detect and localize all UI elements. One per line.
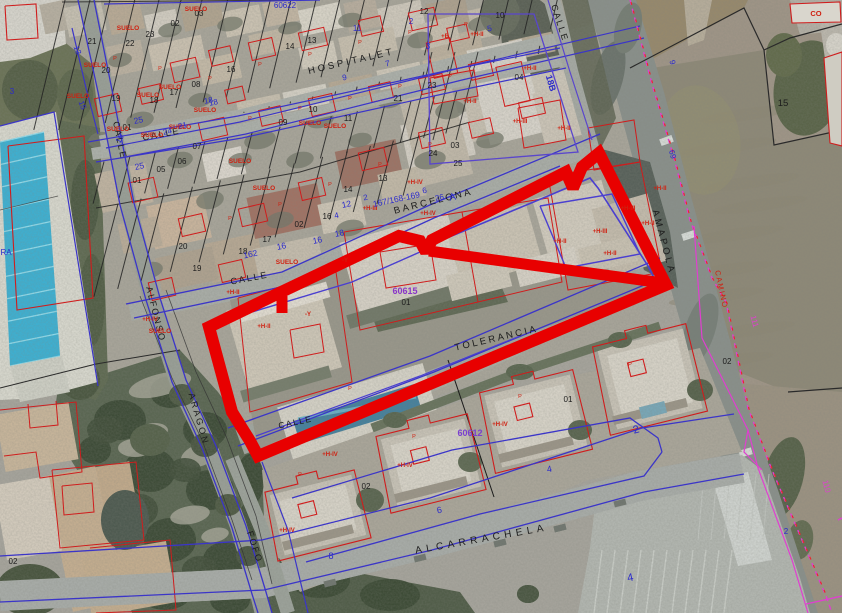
- svg-text:P: P: [298, 106, 302, 112]
- svg-text:P: P: [378, 162, 382, 168]
- svg-text:CO: CO: [810, 9, 821, 18]
- svg-text:SUELO: SUELO: [276, 259, 298, 266]
- svg-text:P: P: [518, 394, 522, 400]
- svg-text:02: 02: [9, 557, 18, 566]
- svg-text:+H-II: +H-II: [553, 239, 567, 245]
- svg-text:+H-II: +H-II: [523, 66, 537, 72]
- svg-text:12: 12: [420, 7, 429, 16]
- svg-text:P: P: [398, 84, 402, 90]
- svg-text:+H-II: +H-II: [226, 290, 240, 296]
- svg-text:P: P: [208, 76, 212, 82]
- svg-text:22: 22: [126, 39, 135, 48]
- svg-text:14: 14: [286, 42, 295, 51]
- svg-text:8: 8: [328, 551, 333, 561]
- svg-text:SUELO: SUELO: [324, 123, 346, 130]
- svg-text:23: 23: [146, 30, 155, 39]
- svg-text:SUELO: SUELO: [107, 126, 129, 133]
- svg-text:23: 23: [428, 81, 437, 90]
- svg-text:P: P: [358, 40, 362, 46]
- svg-text:+H-II: +H-II: [641, 221, 655, 227]
- svg-text:07: 07: [193, 142, 202, 151]
- svg-text:SUELO: SUELO: [137, 92, 159, 99]
- svg-text:25: 25: [454, 159, 463, 168]
- svg-text:P: P: [158, 66, 162, 72]
- svg-text:+H-IV: +H-IV: [420, 211, 436, 217]
- svg-text:+H-III: +H-III: [593, 229, 608, 235]
- svg-text:P: P: [412, 434, 416, 440]
- svg-text:SUELO: SUELO: [84, 62, 106, 69]
- svg-text:P: P: [278, 202, 282, 208]
- svg-text:02: 02: [295, 220, 304, 229]
- svg-text:-Y: -Y: [305, 312, 311, 318]
- svg-text:SUELO: SUELO: [149, 328, 171, 335]
- svg-text:SUELO: SUELO: [185, 6, 207, 13]
- svg-text:SUELO: SUELO: [141, 132, 163, 139]
- svg-text:P: P: [348, 386, 352, 392]
- svg-text:13: 13: [379, 174, 388, 183]
- svg-text:01: 01: [133, 176, 142, 185]
- svg-text:2: 2: [409, 17, 414, 26]
- svg-text:19: 19: [112, 94, 121, 103]
- svg-text:02: 02: [362, 482, 371, 491]
- svg-text:RA: RA: [0, 248, 12, 257]
- svg-text:02: 02: [723, 357, 732, 366]
- svg-text:11: 11: [344, 114, 353, 123]
- svg-text:+H-III: +H-III: [513, 119, 528, 125]
- svg-text:P: P: [448, 74, 452, 80]
- svg-text:SUELO: SUELO: [159, 84, 181, 91]
- svg-text:15: 15: [778, 98, 789, 109]
- svg-text:13: 13: [308, 36, 317, 45]
- svg-text:60615: 60615: [392, 286, 417, 296]
- svg-text:+H-II: +H-II: [257, 324, 271, 330]
- svg-text:11: 11: [353, 24, 362, 33]
- svg-text:P: P: [298, 472, 302, 478]
- svg-text:03: 03: [451, 141, 460, 150]
- svg-text:+H-II: +H-II: [653, 186, 667, 192]
- svg-text:P: P: [258, 62, 262, 68]
- svg-text:3: 3: [426, 42, 431, 51]
- svg-text:3: 3: [10, 87, 15, 96]
- svg-text:+H-IV: +H-IV: [142, 317, 158, 323]
- svg-text:14: 14: [344, 185, 353, 194]
- svg-text:+H-II: +H-II: [603, 251, 617, 257]
- svg-text:SUELO: SUELO: [253, 185, 275, 192]
- svg-text:06: 06: [178, 157, 187, 166]
- svg-text:P: P: [328, 182, 332, 188]
- svg-text:09: 09: [279, 118, 288, 127]
- svg-text:24: 24: [429, 149, 438, 158]
- svg-text:17: 17: [263, 235, 272, 244]
- svg-text:SUELO: SUELO: [194, 107, 216, 114]
- svg-text:19: 19: [193, 264, 202, 273]
- svg-text:P: P: [464, 22, 468, 28]
- svg-text:16: 16: [227, 65, 236, 74]
- svg-text:05: 05: [157, 165, 166, 174]
- svg-text:2: 2: [784, 527, 789, 536]
- svg-text:01: 01: [564, 395, 573, 404]
- svg-text:60622: 60622: [274, 1, 297, 10]
- svg-text:+H-II: +H-II: [557, 126, 571, 132]
- svg-text:P: P: [113, 56, 117, 62]
- svg-text:10: 10: [309, 105, 318, 114]
- svg-text:+H-IV: +H-IV: [279, 528, 295, 534]
- svg-text:+H-IV: +H-IV: [322, 452, 338, 458]
- svg-text:+H-IV: +H-IV: [407, 180, 423, 186]
- svg-text:10: 10: [496, 11, 505, 20]
- svg-text:P: P: [308, 52, 312, 58]
- svg-text:+B: +B: [441, 34, 450, 40]
- svg-text:60612: 60612: [457, 428, 482, 438]
- svg-text:+H-II: +H-II: [470, 32, 484, 38]
- svg-text:+H-IV: +H-IV: [397, 463, 413, 469]
- svg-text:P: P: [628, 362, 632, 368]
- svg-text:04: 04: [515, 73, 524, 82]
- svg-text:+H-III: +H-III: [621, 206, 636, 212]
- svg-text:P: P: [408, 30, 412, 36]
- svg-text:08: 08: [192, 80, 201, 89]
- svg-text:P: P: [228, 216, 232, 222]
- svg-text:P: P: [248, 116, 252, 122]
- svg-text:+H-IV: +H-IV: [492, 422, 508, 428]
- svg-text:P: P: [348, 96, 352, 102]
- svg-text:02: 02: [171, 19, 180, 28]
- svg-text:P: P: [428, 142, 432, 148]
- svg-text:SUELO: SUELO: [299, 120, 321, 127]
- svg-text:20: 20: [179, 242, 188, 251]
- svg-text:SUELO: SUELO: [117, 25, 139, 32]
- svg-text:+H-II: +H-II: [463, 99, 477, 105]
- svg-text:-Y: -Y: [342, 258, 348, 264]
- svg-text:01: 01: [402, 298, 411, 307]
- svg-text:16: 16: [323, 212, 332, 221]
- svg-text:21: 21: [394, 94, 403, 103]
- svg-text:21: 21: [88, 37, 97, 46]
- svg-text:SUELO: SUELO: [229, 158, 251, 165]
